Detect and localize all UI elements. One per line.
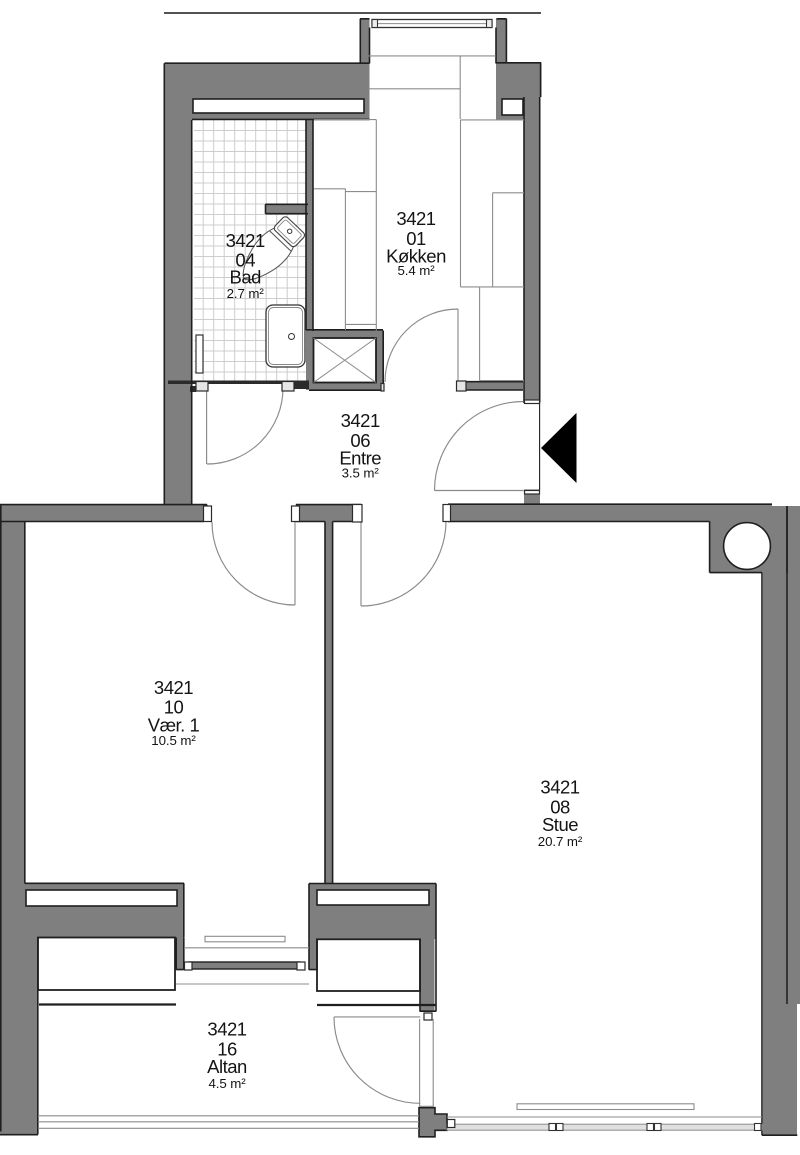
svg-text:3421: 3421 — [226, 230, 265, 251]
svg-text:10.5 m²: 10.5 m² — [151, 733, 196, 748]
svg-text:Altan: Altan — [207, 1056, 247, 1077]
svg-text:3421: 3421 — [396, 208, 435, 229]
svg-text:3.5 m²: 3.5 m² — [342, 466, 380, 481]
svg-text:3421: 3421 — [341, 410, 380, 431]
svg-text:Stue: Stue — [542, 814, 578, 835]
svg-text:3421: 3421 — [207, 1018, 246, 1039]
svg-text:5.4 m²: 5.4 m² — [397, 263, 435, 278]
svg-text:3421: 3421 — [154, 677, 193, 698]
svg-text:2.7 m²: 2.7 m² — [227, 286, 265, 301]
svg-text:20.7 m²: 20.7 m² — [538, 834, 583, 849]
svg-text:4.5 m²: 4.5 m² — [208, 1076, 246, 1091]
svg-text:3421: 3421 — [540, 777, 579, 798]
svg-text:Bad: Bad — [229, 267, 261, 288]
